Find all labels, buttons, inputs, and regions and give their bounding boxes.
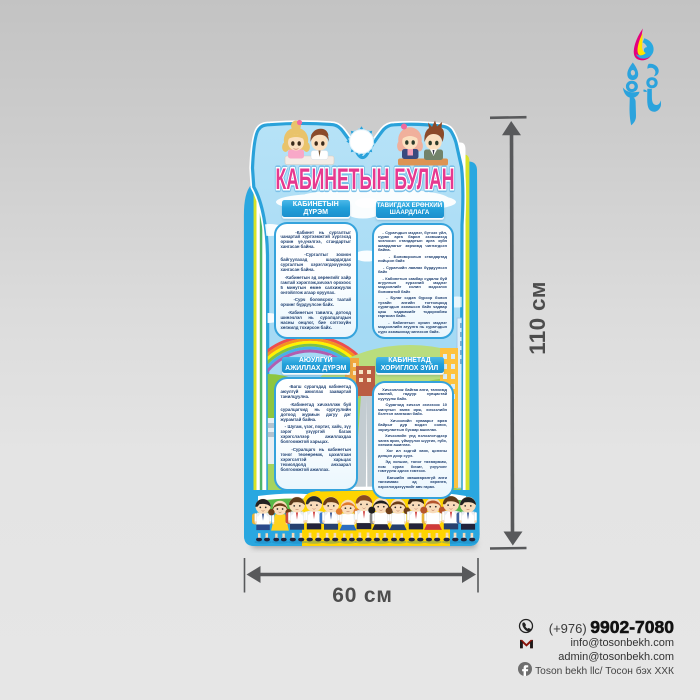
svg-text:60 см: 60 см xyxy=(332,584,392,607)
svg-text:110 см: 110 см xyxy=(525,281,550,355)
svg-text:КАБИНЕТЫН БУЛАН: КАБИНЕТЫН БУЛАН xyxy=(276,163,455,196)
